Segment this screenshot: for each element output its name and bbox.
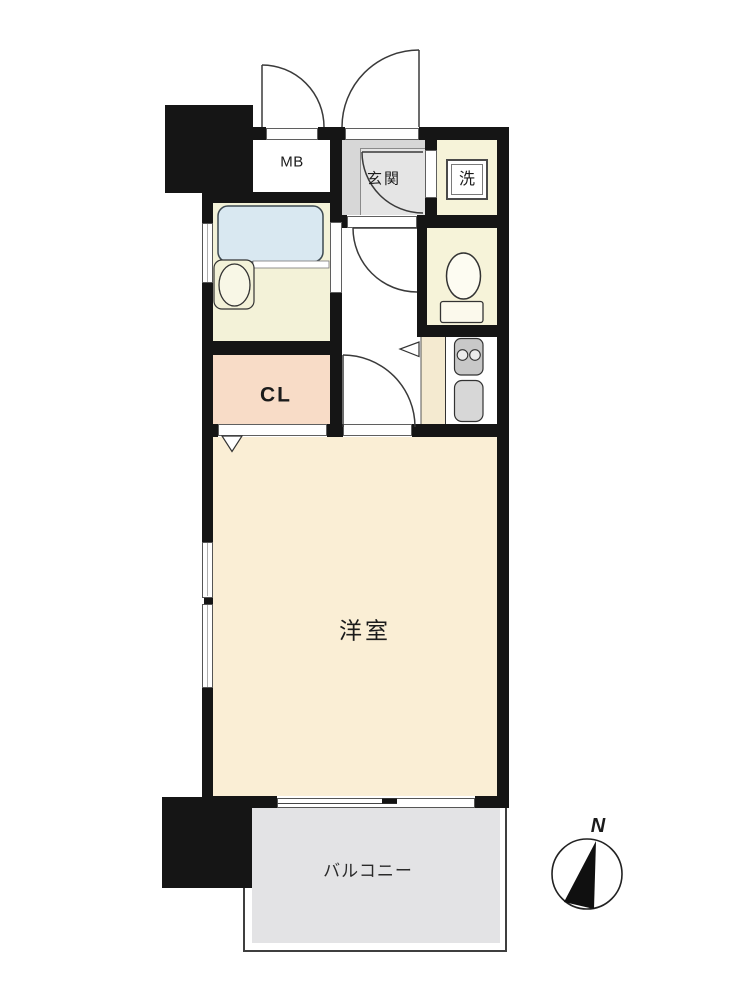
stove-burner xyxy=(457,350,468,361)
western-room-label: 洋室 xyxy=(339,620,391,643)
front-door-swing-arc xyxy=(342,50,419,127)
toilet-tank xyxy=(441,302,484,323)
laundry-label: 洗 xyxy=(459,172,475,188)
closet-opening-marker xyxy=(222,436,242,452)
closet-label: CL xyxy=(260,385,292,406)
compass-north-label: N xyxy=(591,816,605,836)
meter-box-door-swing-arc xyxy=(262,65,324,127)
hall-door-swing-arc xyxy=(353,228,417,292)
washbasin xyxy=(219,264,250,306)
stove-burner xyxy=(470,350,481,361)
room-door-swing-arc xyxy=(343,355,415,427)
entrance-label: 玄関 xyxy=(367,172,401,187)
bath-counter xyxy=(253,261,329,268)
meter-box-label: MB xyxy=(280,155,304,170)
plan-vector-overlay xyxy=(0,0,752,1000)
sliding-window-overlap xyxy=(382,799,397,804)
balcony-label: バルコニー xyxy=(323,863,413,880)
bathtub xyxy=(218,206,323,262)
kitchen-opening-marker xyxy=(400,342,419,357)
floor-plan: MB 玄関 洗 CL 洋室 バルコニー N xyxy=(0,0,752,1000)
toilet-bowl xyxy=(447,253,481,299)
kitchen-sink xyxy=(455,381,484,422)
